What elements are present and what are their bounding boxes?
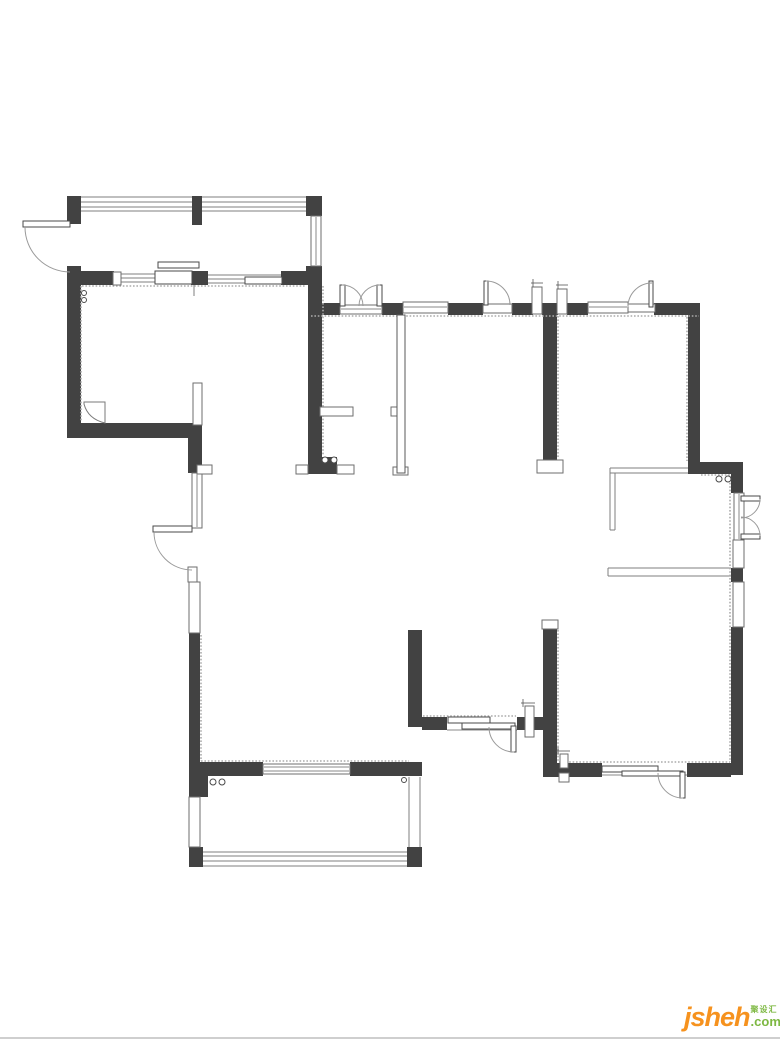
logo-tld-text: .com	[751, 1015, 780, 1028]
logo-brand-text: jsheh	[684, 1004, 750, 1031]
page: jsheh 聚设汇 .com	[0, 0, 780, 1040]
window-mullion-lines	[197, 217, 739, 775]
thin-partition-walls	[397, 315, 405, 473]
floor-plan	[0, 0, 780, 1040]
logo-tagline-text: 聚设汇	[751, 1006, 780, 1014]
windows-layer	[113, 216, 744, 847]
watermark-logo: jsheh 聚设汇 .com	[684, 1004, 780, 1031]
logo-right-column: 聚设汇 .com	[751, 1006, 780, 1028]
fixtures-layer	[84, 402, 105, 423]
drain-circles	[82, 291, 732, 786]
footer-divider-line	[0, 1037, 780, 1039]
